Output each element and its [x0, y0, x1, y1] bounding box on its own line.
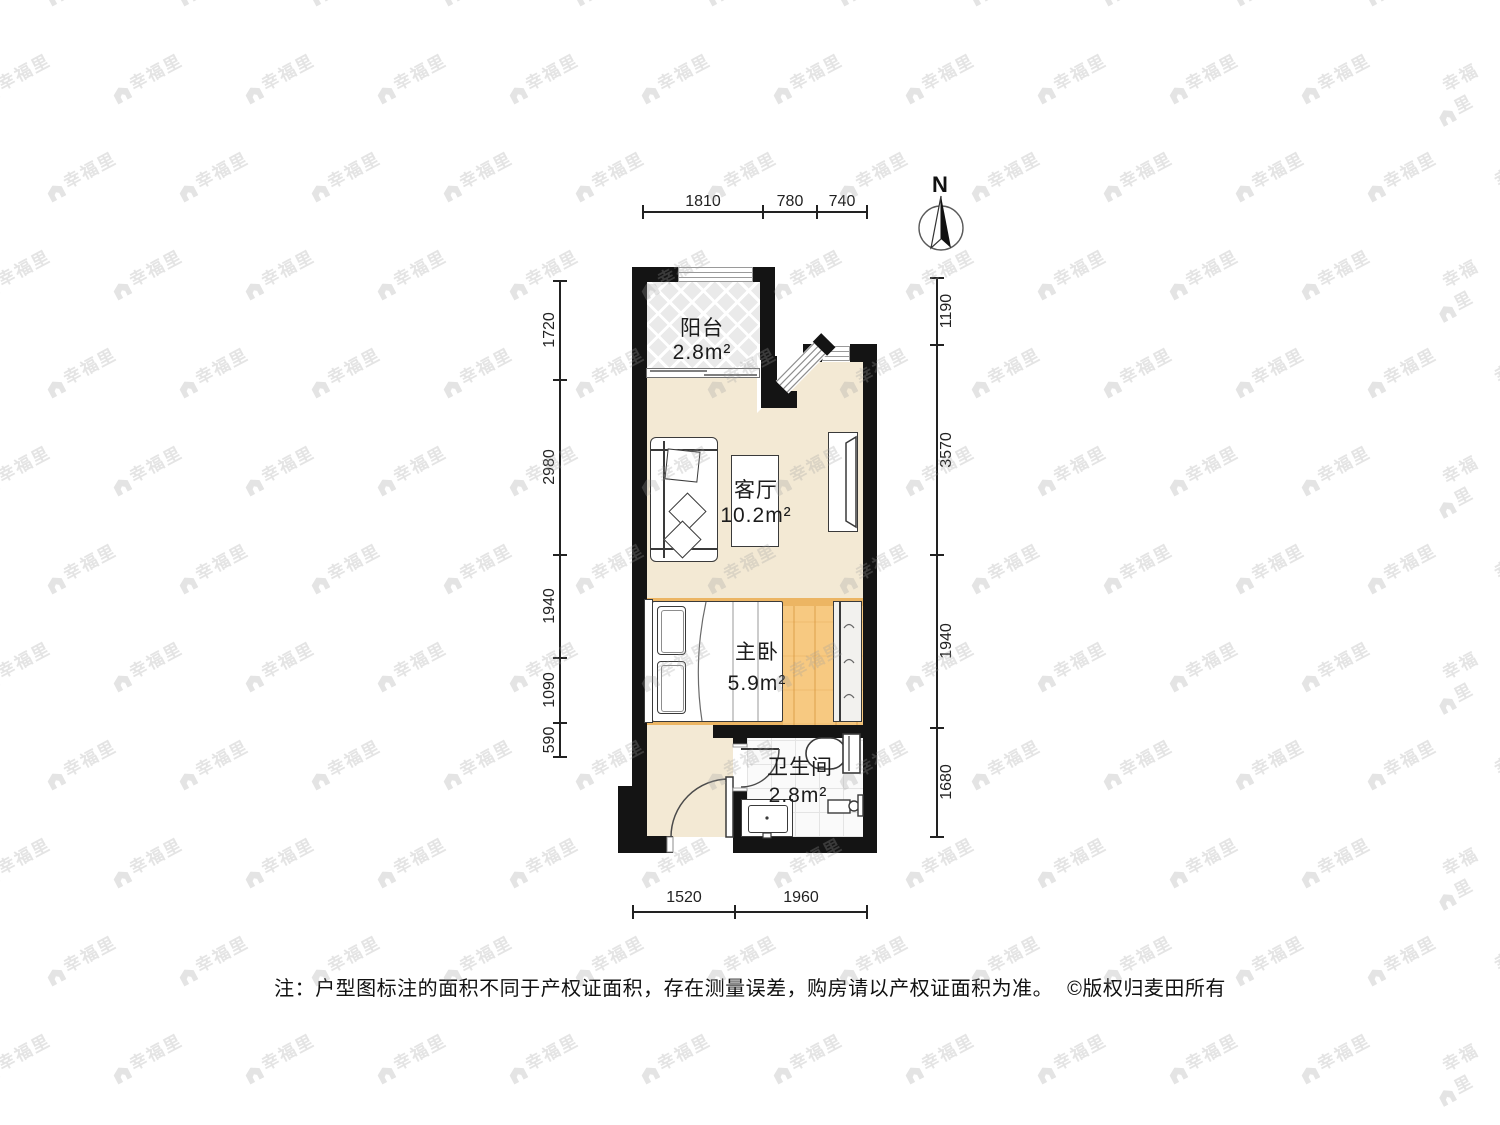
plan-vector-overlay	[0, 0, 1500, 1125]
dim-left-2980: 2980	[541, 449, 559, 485]
disclaimer-text: 注：户型图标注的面积不同于产权证面积，存在测量误差，购房请以产权证面积为准。	[274, 978, 1053, 1000]
dim-left-1090: 1090	[541, 672, 559, 708]
bedroom-name: 主卧	[735, 636, 779, 666]
dim-right-1190: 1190	[938, 294, 956, 328]
dim-left-590: 590	[541, 727, 559, 754]
dim-top-1810: 1810	[685, 193, 721, 211]
bathroom-area: 2.8m²	[769, 784, 828, 808]
washbasin-tap	[763, 816, 771, 838]
dim-left-1720: 1720	[541, 312, 559, 348]
diagonal-window	[767, 333, 836, 403]
living-area: 10.2m²	[720, 504, 791, 528]
dim-top-780: 780	[777, 193, 804, 211]
dim-bottom-1960: 1960	[783, 889, 819, 907]
tv-icon	[846, 437, 856, 527]
copyright-text: ©版权归麦田所有	[1067, 978, 1226, 1000]
dimension-lines	[553, 205, 944, 919]
bathroom-name: 卫生间	[767, 751, 833, 781]
footer-note-bar: 注：户型图标注的面积不同于产权证面积，存在测量误差，购房请以产权证面积为准。©版…	[0, 972, 1500, 1001]
north-label: N	[932, 172, 948, 198]
dim-left-1940: 1940	[541, 588, 559, 624]
floorplan-page: 阳台 2.8m² 客厅 10.2m² 主卧 5.9m² 卫生间 2.8m² 18…	[0, 0, 1500, 1125]
sliding-door	[647, 369, 760, 378]
living-name: 客厅	[734, 474, 778, 504]
dim-right-1680: 1680	[938, 764, 956, 800]
bedroom-area: 5.9m²	[728, 672, 787, 696]
north-compass-icon	[919, 196, 963, 250]
balcony-name: 阳台	[680, 312, 724, 342]
washing-fixture	[828, 795, 863, 816]
entry-door	[667, 777, 733, 852]
dim-bottom-1520: 1520	[666, 889, 702, 907]
dim-top-740: 740	[829, 193, 856, 211]
wardrobe-hooks	[844, 625, 854, 699]
balcony-area: 2.8m²	[673, 341, 732, 365]
dim-right-1940: 1940	[938, 623, 956, 659]
dim-right-3570: 3570	[938, 432, 956, 468]
